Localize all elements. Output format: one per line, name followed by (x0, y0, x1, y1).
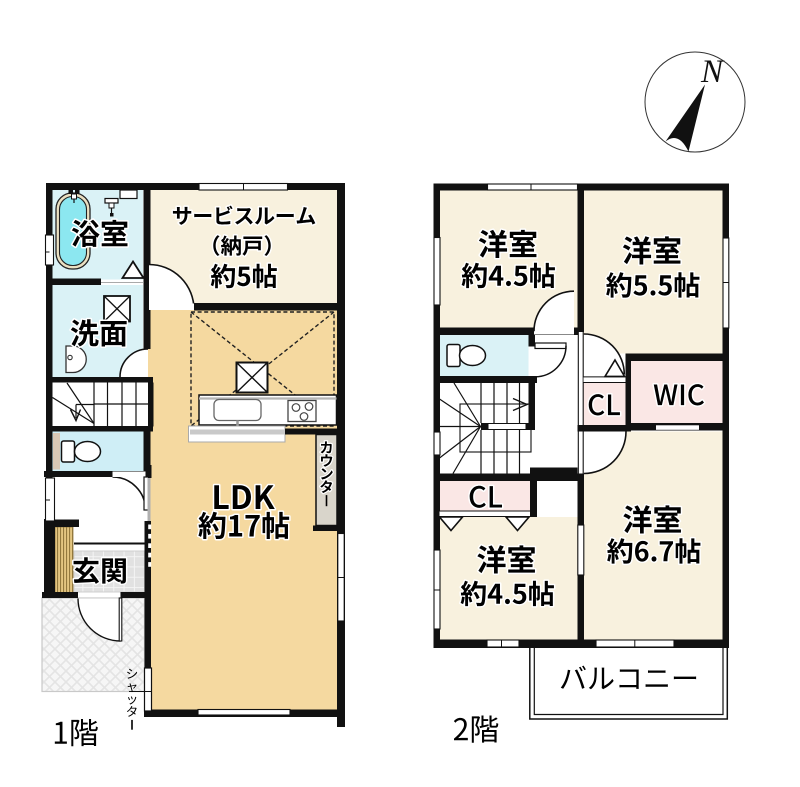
svg-text:N: N (700, 54, 725, 90)
